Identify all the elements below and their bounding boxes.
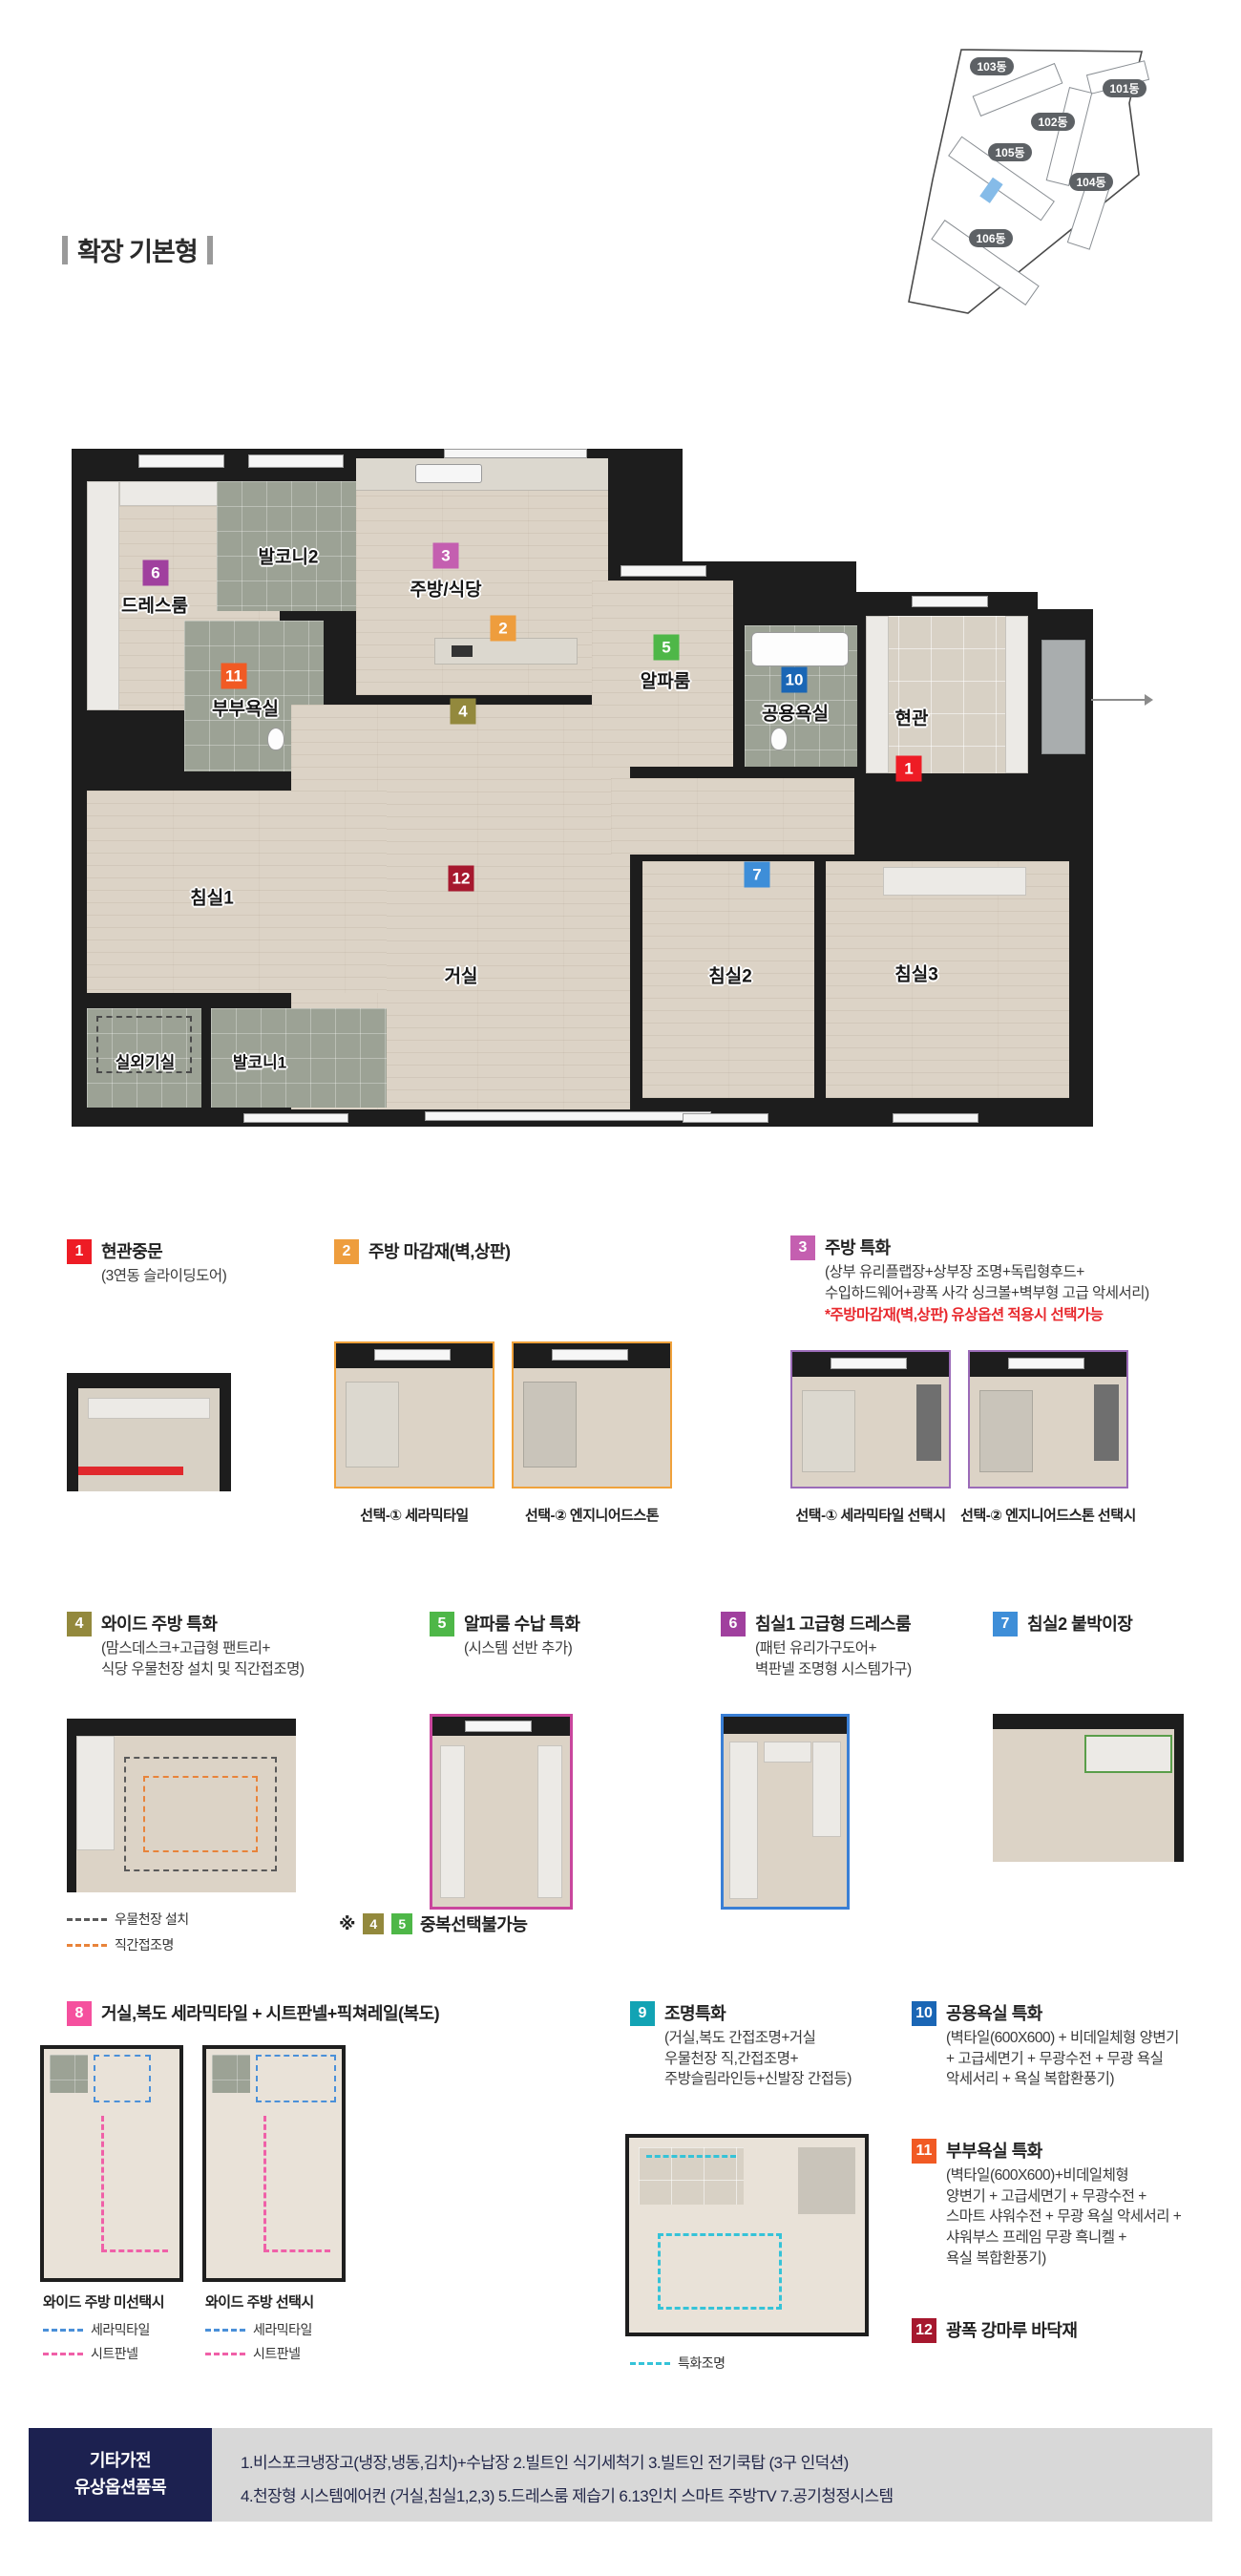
room-bed1 [87,791,387,993]
legend-title-5: 알파룸 수납 특화 [464,1612,579,1636]
legend-title-1: 현관중문 [101,1239,226,1264]
building-label-106: 106동 [969,229,1013,247]
duplicate-selection-note: ※ 4 5 중복선택불가능 [339,1911,527,1936]
footer-options-line1: 1.비스포크냉장고(냉장,냉동,김치)+수납장 2.빌트인 식기세척기 3.빌트… [241,2449,849,2473]
thumb-kitchen-special1 [790,1350,951,1489]
legend-title-10: 공용욕실 특화 [946,2001,1179,2026]
thumb-closet [764,1742,811,1763]
plan-badge-3: 3 [433,543,459,569]
thumb-wall [67,1373,231,1388]
svg-text:101동: 101동 [1109,82,1139,95]
legend-item-9: 9 조명특화 (거실,복도 간접조명+거실 우물천장 직,간접조명+ 주방슬림라… [630,2001,852,2090]
room-label-master-bath: 부부욕실 [212,695,279,721]
legend-dash-sheet-2: 시트판넬 [205,2344,301,2363]
thumb-wall [220,1373,231,1491]
room-label-bed3: 침실3 [894,961,938,986]
footer-category-label: 기타가전 유상옵션품목 [29,2428,212,2522]
dressroom-closet [87,481,119,710]
toilet-icon [267,728,284,750]
legend-desc-4: (맘스데스크+고급형 팬트리+ 식당 우물천장 설치 및 직간접조명) [101,1638,305,1679]
mini-ceramic-dashed [256,2055,336,2102]
room-label-dressroom: 드레스룸 [121,592,188,618]
building-label-105: 105동 [988,143,1032,161]
thumb-wide-kitchen [67,1719,296,1892]
legend-item-10: 10 공용욕실 특화 (벽타일(600X600) + 비데일체형 양변기 + 고… [912,2001,1179,2090]
legend-title-7: 침실2 붙박이장 [1027,1612,1132,1636]
legend-title-4: 와이드 주방 특화 [101,1612,305,1636]
thumb-wall [67,1719,296,1736]
mini-room [798,2147,855,2214]
thumb-alpha-storage [430,1714,573,1910]
thumb-wall [993,1714,1184,1729]
caption-item3-2: 선택-② 엔지니어드스톤 선택시 [960,1505,1136,1525]
room-label-bed2: 침실2 [708,962,752,988]
caption-item2-2: 선택-② 엔지니어드스톤 [525,1505,659,1525]
thumb-counter [979,1390,1033,1472]
building-label-102: 102동 [1031,113,1075,131]
thumb-wall [1174,1714,1184,1862]
dashed-line-pink [43,2353,83,2355]
note-mark: ※ [339,1914,355,1934]
entrance-arrow-line [1091,699,1146,701]
dashed-line-pink [205,2353,245,2355]
thumb-sliding-door-red [78,1467,183,1475]
thumb-hood [1094,1384,1119,1461]
kitchen-hob [452,645,473,657]
thumb-counter [346,1382,399,1467]
legend-badge-10: 10 [912,2001,936,2026]
corridor [611,778,854,855]
dash-label-indirect: 직간접조명 [115,1935,174,1954]
plan-badge-4: 4 [451,699,476,725]
legend-badge-9: 9 [630,2001,655,2026]
dash-label-well: 우물천장 설치 [115,1910,189,1929]
legend-title-9: 조명특화 [664,2001,852,2026]
plan-badge-1: 1 [896,756,922,782]
bathtub-icon [751,632,849,666]
legend-badge-11: 11 [912,2139,936,2164]
dashed-line-orange [67,1944,107,1947]
mini-light-dashed-rect [658,2233,782,2310]
caption-item8-1: 와이드 주방 미선택시 [43,2291,164,2312]
legend-desc-10: (벽타일(600X600) + 비데일체형 양변기 + 고급세면기 + 무광수전… [946,2028,1179,2090]
caption-item3-1: 선택-① 세라믹타일 선택시 [795,1505,945,1525]
thumb-miniplan-wide-kitchen [202,2045,346,2282]
legend-dash-ceramic-1: 세라믹타일 [43,2320,150,2339]
legend-item-12: 12 광폭 강마루 바닥재 [912,2318,1077,2343]
caption-item2-1: 선택-① 세라믹타일 [360,1505,468,1525]
dashed-line-cyan [630,2362,670,2365]
legend-badge-3: 3 [790,1235,815,1260]
brochure-page: 확장 기본형 103동 101동 102동 105동 [0,0,1241,2576]
dash-label-light: 특화조명 [678,2354,726,2373]
caption-item8-2: 와이드 주방 선택시 [205,2291,314,2312]
building-label-101: 101동 [1103,79,1146,97]
legend-badge-2: 2 [334,1239,359,1264]
legend-item-5: 5 알파룸 수납 특화 (시스템 선반 추가) [430,1612,579,1659]
legend-badge-8: 8 [67,2001,92,2026]
legend-title-2: 주방 마감재(벽,상판) [368,1239,510,1264]
thumb-dressroom-system [721,1714,850,1910]
dash-label-sheet: 시트판넬 [253,2344,301,2363]
thumb-counter [802,1390,855,1472]
legend-item-4: 4 와이드 주방 특화 (맘스데스크+고급형 팬트리+ 식당 우물천장 설치 및… [67,1612,305,1679]
title-bar-left [62,236,68,264]
legend-desc-9: (거실,복도 간접조명+거실 우물천장 직,간접조명+ 주방슬림라인등+신발장 … [664,2028,852,2090]
plan-badge-2: 2 [491,616,516,642]
legend-item-11: 11 부부욕실 특화 (벽타일(600X600)+비데일체형 양변기 + 고급세… [912,2139,1181,2269]
thumb-entrance-door [67,1373,231,1491]
plan-badge-7: 7 [745,862,770,888]
mini-light-dashed [646,2155,736,2158]
building-label-103: 103동 [970,57,1014,75]
legend-title-12: 광폭 강마루 바닥재 [946,2318,1077,2343]
room-label-entrance: 현관 [895,705,929,730]
plan-badge-6: 6 [143,560,169,586]
window-mark [620,565,706,577]
legend-item-1: 1 현관중문 (3연동 슬라이딩도어) [67,1239,226,1287]
svg-text:102동: 102동 [1038,116,1067,129]
thumb-pantry [76,1736,115,1850]
room-label-living: 거실 [445,962,478,988]
entrance-arrow-icon [1145,694,1153,706]
thumb-wall [67,1719,76,1892]
bed3-closet [883,867,1026,896]
legend-title-8: 거실,복도 세라믹타일 + 시트판넬+픽쳐레일(복도) [101,2001,439,2026]
kitchen-sink [415,464,482,483]
legend-badge-6: 6 [721,1612,746,1636]
plan-badge-11: 11 [221,664,247,689]
thumb-kitchen-option2 [512,1341,672,1489]
legend-dash-ceramic-2: 세라믹타일 [205,2320,312,2339]
legend-title-6: 침실1 고급형 드레스룸 [755,1612,912,1636]
thumb-counter [523,1382,577,1467]
thumb-closet [88,1398,210,1419]
legend-dash-well: 우물천장 설치 [67,1910,189,1929]
window-mark [893,1113,978,1123]
dashed-line-blue [205,2329,245,2332]
svg-text:106동: 106동 [976,232,1005,245]
thumb-shelf [440,1745,465,1898]
room-label-outdoor-unit: 실외기실 [116,1049,176,1073]
page-title: 확장 기본형 [62,231,213,268]
legend-desc-3: (상부 유리플랩장+상부장 조명+독립형후드+ 수입하드웨어+광폭 사각 싱크볼… [825,1262,1149,1303]
legend-desc-6: (패턴 유리가구도어+ 벽판넬 조명형 시스템가구) [755,1638,912,1679]
legend-dash-sheet-1: 시트판넬 [43,2344,138,2363]
window-mark [683,1113,768,1123]
dash-label-sheet: 시트판넬 [91,2344,138,2363]
mini-sheet-dashed [101,2249,168,2252]
room-label-common-bath: 공용욕실 [762,700,829,726]
site-plan: 103동 101동 102동 105동 104동 106동 [907,33,1231,339]
legend-desc-1: (3연동 슬라이딩도어) [101,1266,226,1287]
mini-sheet-dashed [263,2116,266,2249]
dashed-line-blue [43,2329,83,2332]
thumb-lighting-miniplan [625,2134,869,2336]
window-mark [243,1113,348,1123]
note-badge-4: 4 [363,1913,384,1934]
note-text: 중복선택불가능 [420,1911,527,1936]
plan-badge-5: 5 [654,635,680,661]
legend-item-8: 8 거실,복도 세라믹타일 + 시트판넬+픽쳐레일(복도) [67,2001,439,2026]
legend-badge-1: 1 [67,1239,92,1264]
room-label-alpha: 알파룸 [641,667,690,693]
toilet-icon [770,728,788,750]
thumb-builtin-closet [993,1714,1184,1862]
legend-badge-4: 4 [67,1612,92,1636]
legend-badge-12: 12 [912,2318,936,2343]
legend-item-6: 6 침실1 고급형 드레스룸 (패턴 유리가구도어+ 벽판넬 조명형 시스템가구… [721,1612,912,1679]
thumb-shelf [537,1745,562,1898]
mini-balcony [50,2055,88,2093]
thumb-kitchen-option1 [334,1341,494,1489]
building-label-104: 104동 [1069,173,1113,191]
legend-item-3: 3 주방 특화 (상부 유리플랩장+상부장 조명+독립형후드+ 수입하드웨어+광… [790,1235,1149,1326]
thumb-wall [67,1373,78,1491]
room-label-balcony2: 발코니2 [258,543,318,569]
thumb-miniplan-no-wide-kitchen [40,2045,183,2282]
thumb-window [465,1721,532,1732]
dash-label-ceramic: 세라믹타일 [253,2320,312,2339]
legend-desc-11: (벽타일(600X600)+비데일체형 양변기 + 고급세면기 + 무광수전 +… [946,2165,1181,2269]
plan-badge-12: 12 [449,866,474,892]
thumb-indirect-light-dashed [143,1776,258,1852]
dash-label-ceramic: 세라믹타일 [91,2320,150,2339]
legend-dash-indirect: 직간접조명 [67,1935,174,1954]
thumb-kitchen-special2 [968,1350,1128,1489]
legend-badge-5: 5 [430,1612,454,1636]
window-mark [425,1111,711,1121]
window-mark [912,596,988,607]
shoe-closet [1005,616,1028,773]
legend-item-2: 2 주방 마감재(벽,상판) [334,1239,510,1264]
note-badge-5: 5 [391,1913,412,1934]
window-mark [248,454,344,468]
thumb-window [374,1349,451,1361]
legend-title-3: 주방 특화 [825,1235,1149,1260]
thumb-hood [916,1384,941,1461]
mini-sheet-dashed [101,2116,104,2249]
window-mark [444,449,587,458]
room-label-kitchen: 주방/식당 [410,576,481,602]
legend-item-7: 7 침실2 붙박이장 [993,1612,1132,1636]
room-label-bed1: 침실1 [190,884,234,910]
thumb-window [552,1349,628,1361]
utility-shaft [1041,640,1085,754]
room-entrance [866,616,1028,773]
legend-note-3: *주방마감재(벽,상판) 유상옵션 적용시 선택가능 [825,1305,1149,1326]
thumb-closet-green [1084,1735,1172,1773]
thumb-closet [729,1742,758,1899]
dashed-line-gray [67,1918,107,1921]
title-bar-right [207,236,213,264]
floor-plan: 드레스룸 발코니2 부부욕실 주방/식당 알파룸 공용욕실 현관 침실1 거실 … [72,449,1093,1127]
thumb-wall [724,1717,847,1734]
legend-desc-5: (시스템 선반 추가) [464,1638,579,1659]
mini-sheet-dashed [263,2249,330,2252]
footer-options-line2: 4.천장형 시스템에어컨 (거실,침실1,2,3) 5.드레스룸 제습기 6.1… [241,2482,894,2506]
room-bed3 [826,861,1069,1098]
svg-text:105동: 105동 [995,146,1024,159]
legend-dash-light: 특화조명 [630,2354,726,2373]
kitchen-counter [356,458,608,491]
legend-title-11: 부부욕실 특화 [946,2139,1181,2164]
room-label-balcony1: 발코니1 [233,1049,286,1073]
thumb-window [1008,1358,1084,1369]
thumb-window [831,1358,907,1369]
plan-badge-10: 10 [782,667,808,693]
legend-badge-7: 7 [993,1612,1018,1636]
thumb-closet [812,1742,841,1837]
page-title-text: 확장 기본형 [77,231,198,268]
svg-text:103동: 103동 [977,60,1006,74]
window-mark [138,454,224,468]
mini-ceramic-dashed [94,2055,151,2102]
shoe-closet [866,616,889,773]
mini-balcony [212,2055,250,2093]
svg-text:104동: 104동 [1076,176,1105,189]
